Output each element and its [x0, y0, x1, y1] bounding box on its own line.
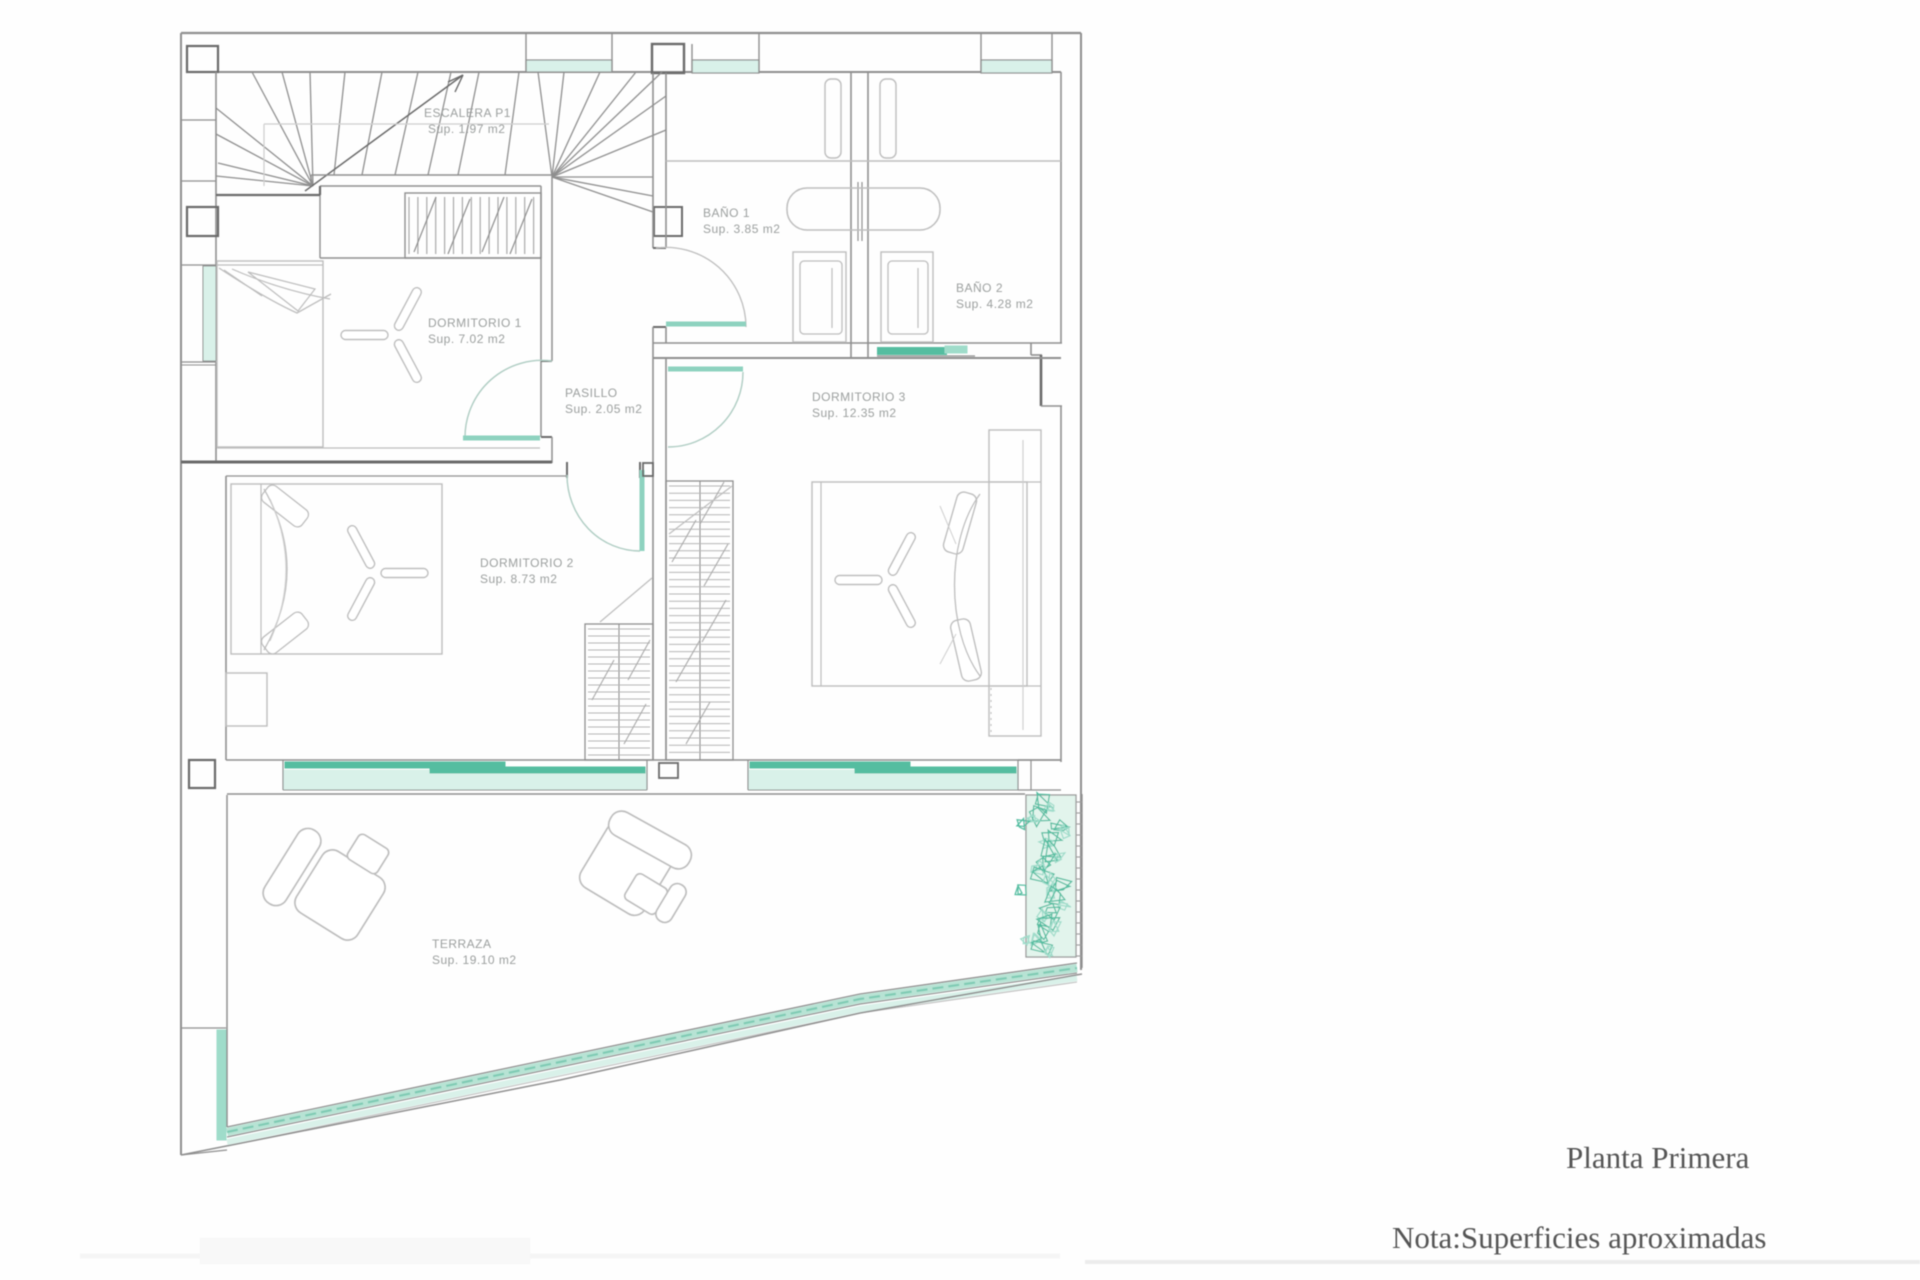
- svg-text:ESCALERA P1: ESCALERA P1: [424, 106, 511, 120]
- svg-text:BAÑO 1: BAÑO 1: [703, 206, 750, 220]
- svg-text:BAÑO 2: BAÑO 2: [956, 281, 1003, 295]
- svg-text:Sup. 8.73 m2: Sup. 8.73 m2: [480, 572, 557, 586]
- svg-text:Nota:Superficies aproximadas: Nota:Superficies aproximadas: [1392, 1220, 1766, 1255]
- svg-text:Sup. 1.97 m2: Sup. 1.97 m2: [428, 122, 505, 136]
- svg-text:Sup. 3.85 m2: Sup. 3.85 m2: [703, 222, 780, 236]
- svg-text:Sup. 2.05 m2: Sup. 2.05 m2: [565, 402, 642, 416]
- svg-text:Sup. 4.28 m2: Sup. 4.28 m2: [956, 297, 1033, 311]
- svg-text:Sup. 12.35 m2: Sup. 12.35 m2: [812, 406, 897, 420]
- svg-text:PASILLO: PASILLO: [565, 386, 618, 400]
- svg-text:Sup. 7.02 m2: Sup. 7.02 m2: [428, 332, 505, 346]
- svg-text:DORMITORIO 1: DORMITORIO 1: [428, 316, 522, 330]
- svg-text:Sup. 19.10 m2: Sup. 19.10 m2: [432, 953, 517, 967]
- svg-text:Planta Primera: Planta Primera: [1566, 1140, 1750, 1175]
- svg-text:DORMITORIO 2: DORMITORIO 2: [480, 556, 574, 570]
- svg-text:TERRAZA: TERRAZA: [432, 937, 492, 951]
- svg-text:DORMITORIO 3: DORMITORIO 3: [812, 390, 906, 404]
